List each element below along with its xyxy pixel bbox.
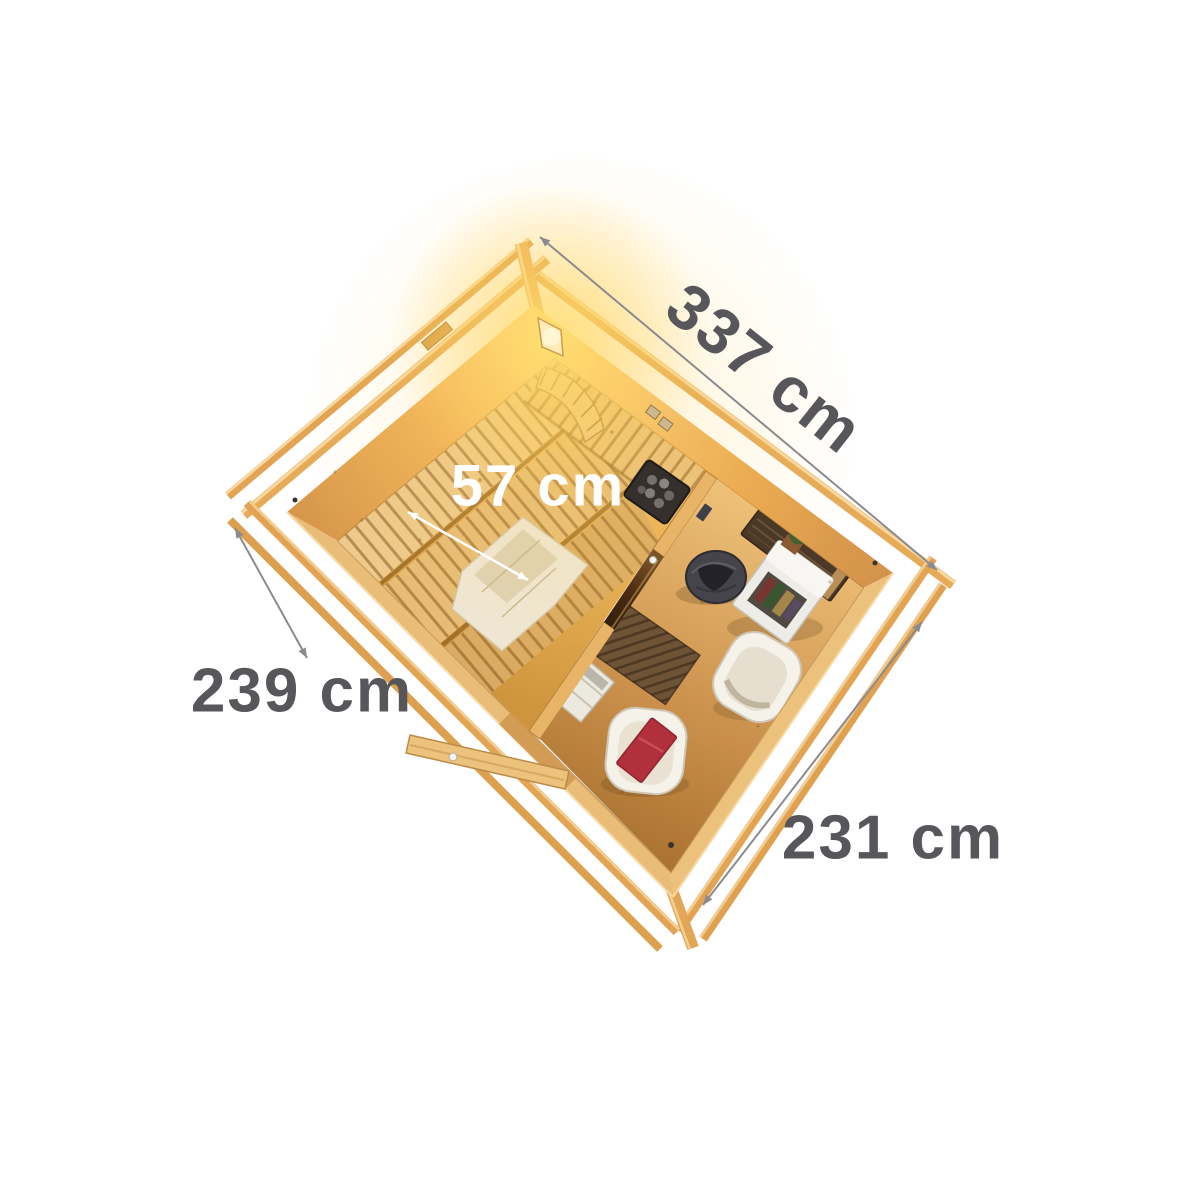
- glass-door-handle: [650, 557, 657, 564]
- basket: [686, 551, 746, 603]
- dimension-label-bottom-width: 231 cm: [782, 804, 1004, 873]
- door-handle: [449, 753, 457, 761]
- sauna-cabin-illustration: 337 cm 239 cm 231 cm 57 cm: [0, 0, 1200, 1200]
- sauna-product-image: 337 cm 239 cm 231 cm 57 cm: [0, 0, 1200, 1200]
- lounge-chair-2: [603, 705, 689, 797]
- dimension-label-bench-depth: 57 cm: [451, 454, 625, 519]
- dimension-label-left-depth: 239 cm: [191, 657, 413, 726]
